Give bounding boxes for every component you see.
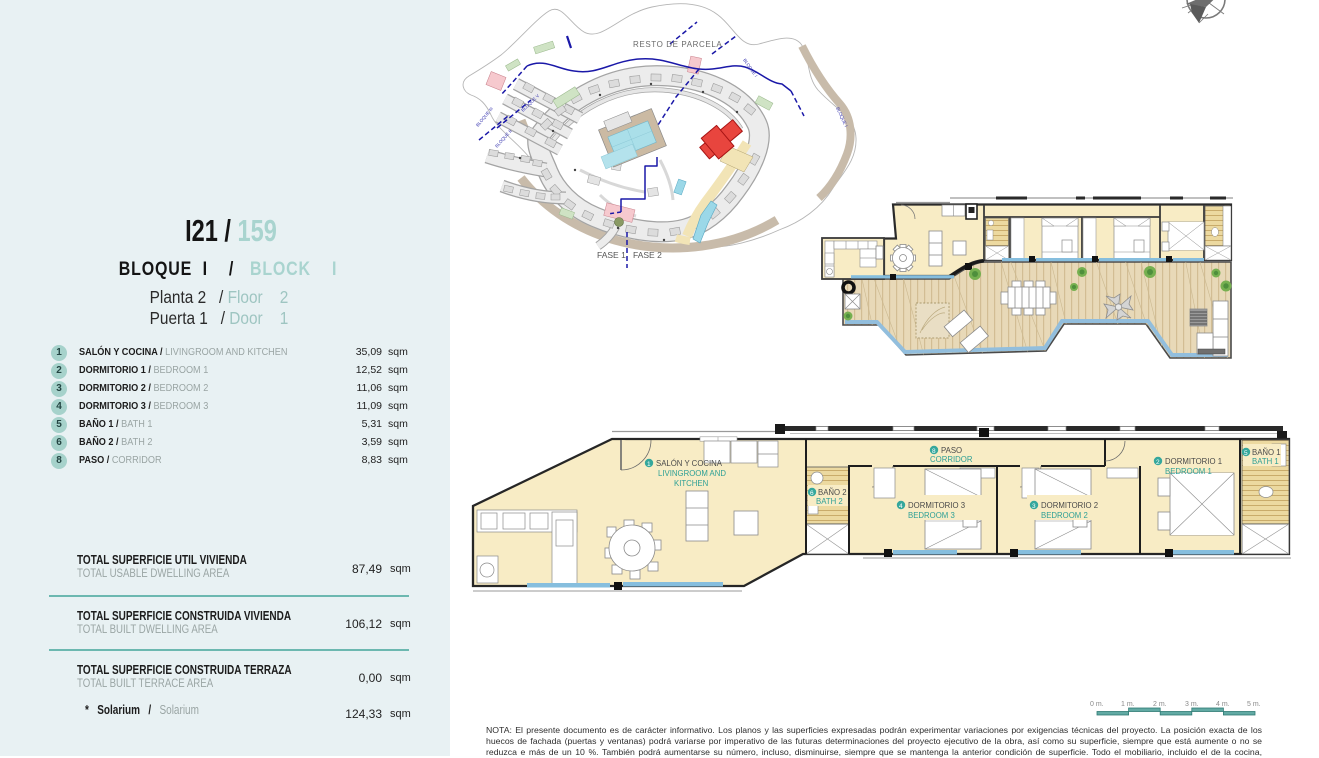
svg-text:SALÓN Y COCINA: SALÓN Y COCINA bbox=[656, 459, 723, 468]
svg-text:8: 8 bbox=[932, 448, 936, 455]
svg-text:BAÑO 2: BAÑO 2 bbox=[818, 488, 847, 497]
svg-text:BATH 2: BATH 2 bbox=[816, 497, 843, 506]
svg-text:3 m.: 3 m. bbox=[1185, 701, 1199, 708]
svg-text:FASE 1: FASE 1 bbox=[597, 250, 626, 260]
svg-text:DORMITORIO 3: DORMITORIO 3 bbox=[908, 501, 965, 510]
svg-text:BATH 1: BATH 1 bbox=[1252, 457, 1279, 466]
svg-text:DORMITORIO 2: DORMITORIO 2 bbox=[1041, 501, 1098, 510]
svg-text:RESTO DE PARCELA: RESTO DE PARCELA bbox=[633, 40, 722, 49]
svg-text:2 m.: 2 m. bbox=[1153, 701, 1167, 708]
svg-text:4: 4 bbox=[899, 503, 903, 510]
svg-text:6: 6 bbox=[810, 490, 814, 497]
svg-text:BLOQUE III: BLOQUE III bbox=[475, 106, 494, 127]
svg-text:FASE 2: FASE 2 bbox=[633, 250, 662, 260]
svg-text:PASO: PASO bbox=[941, 446, 962, 455]
svg-text:5 m.: 5 m. bbox=[1247, 701, 1261, 708]
svg-text:3: 3 bbox=[1032, 503, 1036, 510]
svg-text:2: 2 bbox=[1156, 459, 1160, 466]
svg-text:1 m.: 1 m. bbox=[1121, 701, 1135, 708]
svg-text:4 m.: 4 m. bbox=[1216, 701, 1230, 708]
svg-text:BEDROOM 1: BEDROOM 1 bbox=[1165, 467, 1212, 476]
svg-text:1: 1 bbox=[647, 461, 651, 468]
svg-text:5: 5 bbox=[1244, 450, 1248, 457]
svg-text:CORRIDOR: CORRIDOR bbox=[930, 455, 973, 464]
svg-text:BAÑO 1: BAÑO 1 bbox=[1252, 448, 1281, 457]
svg-text:0 m.: 0 m. bbox=[1090, 701, 1104, 708]
svg-text:DORMITORIO 1: DORMITORIO 1 bbox=[1165, 457, 1222, 466]
svg-text:KITCHEN: KITCHEN bbox=[674, 479, 708, 488]
svg-text:BEDROOM 3: BEDROOM 3 bbox=[908, 511, 955, 520]
svg-text:LIVINGROOM AND: LIVINGROOM AND bbox=[658, 469, 726, 478]
svg-text:BEDROOM 2: BEDROOM 2 bbox=[1041, 511, 1088, 520]
